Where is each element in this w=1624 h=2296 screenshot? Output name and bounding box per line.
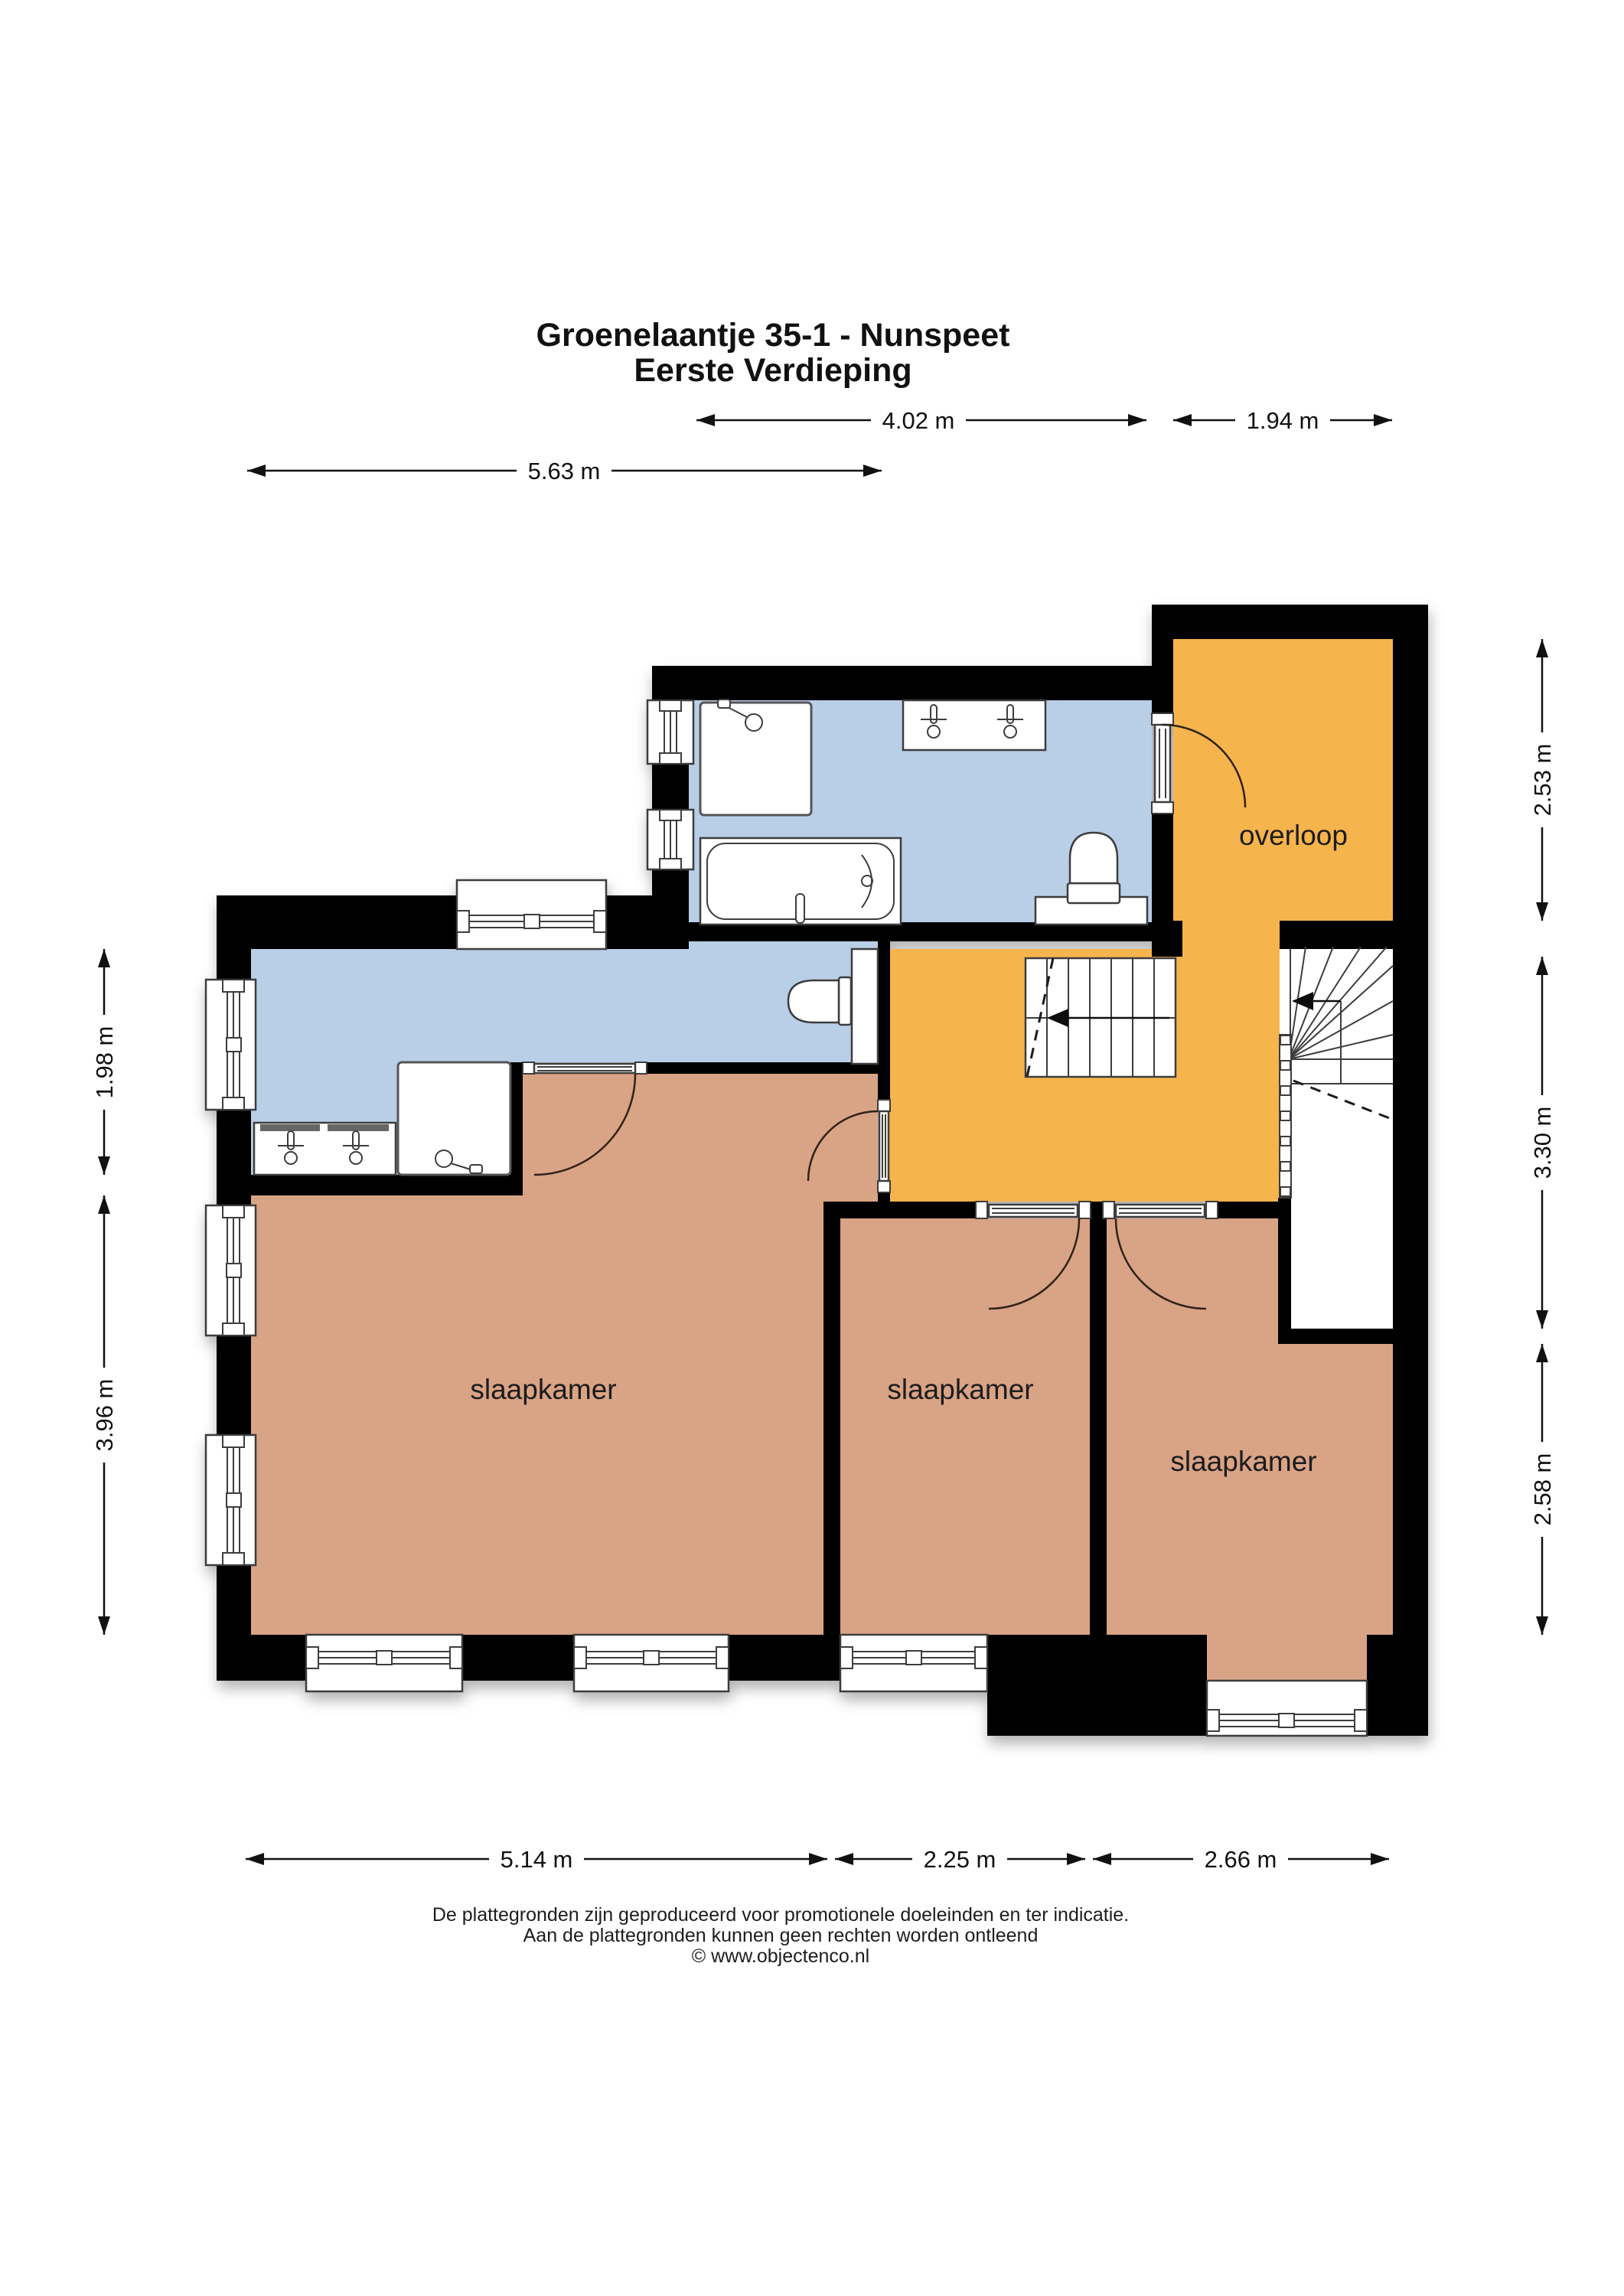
room-label-slaapkamer-middle: slaapkamer [887,1374,1033,1405]
window-left-3 [206,1435,256,1565]
door-leaf [879,1111,889,1181]
arrowhead-down-icon [98,1616,110,1635]
dimension-right-258: 2.58 m [1528,1344,1556,1635]
window-left-2 [206,1205,256,1336]
window-jamb [975,1647,987,1668]
arrowhead-up-icon [1536,1344,1548,1362]
door-leaf [989,1205,1078,1217]
window-post [377,1651,392,1665]
room-label-slaapkamer-left: slaapkamer [470,1374,616,1405]
stairs-icon-hal [1026,958,1176,1077]
floor-plan: overloop slaapkamer slaapkamer slaapkame… [206,605,1428,1736]
bathtub-tap [796,894,804,923]
window-jamb [660,859,681,869]
door-jamb [878,1100,890,1111]
arrowhead-left-icon [835,1853,853,1865]
window-jamb [450,1647,462,1668]
arrowhead-left-icon [1093,1853,1111,1865]
door-jamb [1152,802,1173,814]
dimension-top-194: 1.94 m [1173,406,1392,434]
shower-icon [700,700,811,815]
vanity-icon-bathroom [903,700,1045,750]
room-label-slaapkamer-right: slaapkamer [1170,1446,1316,1477]
shower-valve [718,700,730,708]
window-jamb [840,1647,853,1668]
shower-valve [470,1165,482,1173]
dimension-bottom-225: 2.25 m [835,1845,1085,1873]
vanity-counter [903,700,1045,750]
footer-line3: © www.objectenco.nl [692,1945,869,1967]
page-title-line2: Eerste Verdieping [634,352,911,389]
dimension-left-396: 3.96 m [90,1195,118,1635]
dimension-label: 4.02 m [882,407,955,434]
door-jamb [1079,1202,1091,1218]
window-hallway-north [457,880,606,949]
dimension-top-402: 4.02 m [696,406,1146,434]
toilet-tank [839,977,851,1025]
window-post [227,1038,241,1052]
arrowhead-left-icon [696,414,715,426]
room-label-overloop: overloop [1239,820,1348,851]
dimension-label: 5.14 m [501,1846,573,1873]
dimension-label: 2.66 m [1205,1846,1277,1873]
window-post [227,1493,241,1507]
dimension-label: 3.30 m [1529,1107,1556,1179]
floor-plan-page: Groenelaantje 35-1 - Nunspeet Eerste Ver… [0,0,1624,2296]
dimension-right-330: 3.30 m [1528,957,1556,1329]
arrowhead-down-icon [98,1156,110,1175]
balustrade-post [1280,1035,1290,1045]
window-jamb [223,1205,244,1218]
balustrade-post [1280,1137,1290,1146]
door-leaf [1116,1205,1205,1217]
dimension-top-563: 5.63 m [247,457,882,484]
arrowhead-down-icon [1536,1310,1548,1329]
window-jamb [223,1435,244,1447]
door-leaf [534,1064,635,1073]
toilet-bowl [788,980,839,1022]
floor-plan-canvas: Groenelaantje 35-1 - Nunspeet Eerste Ver… [0,0,1624,2296]
shower-icon-hallway [398,1062,510,1175]
bathtub-icon [700,838,901,925]
window-bottom-2 [574,1635,729,1691]
door-jamb [1103,1202,1114,1218]
arrowhead-up-icon [1536,639,1548,657]
window-jamb [660,810,681,820]
balustrade-post [1280,1187,1290,1196]
shower-tray [398,1062,510,1175]
toilet-platform [852,949,878,1064]
window-post [906,1651,921,1665]
window-post [644,1651,659,1665]
window-jamb [223,1323,244,1336]
arrowhead-right-icon [809,1853,827,1865]
vanity-icon-hallway [254,1123,396,1175]
arrowhead-right-icon [1374,414,1392,426]
door-jamb [1152,713,1173,725]
window-bottom-1 [306,1635,462,1691]
footer-line1: De plattegronden zijn geproduceerd voor … [432,1904,1129,1926]
dimension-label: 1.94 m [1247,407,1319,434]
window-jamb [223,980,244,992]
window-jamb [660,700,681,711]
window-extension [1207,1681,1367,1736]
window-post [524,915,540,928]
arrowhead-up-icon [98,949,110,967]
arrowhead-down-icon [1536,902,1548,921]
arrowhead-up-icon [98,1195,110,1214]
arrowhead-left-icon [246,1853,264,1865]
door-jamb [523,1062,534,1074]
arrowhead-left-icon [1173,414,1192,426]
balustrade-post [1280,1086,1290,1095]
window-jamb [660,753,681,764]
window-post [227,1264,241,1277]
dimension-bottom-514: 5.14 m [246,1845,827,1873]
window-jamb [574,1647,586,1668]
window-jamb [1207,1710,1219,1731]
door-jamb [878,1181,890,1192]
window-bathroom-2 [647,810,693,869]
window-bottom-3 [840,1635,987,1691]
dimension-label: 2.25 m [924,1846,996,1873]
page-title-line1: Groenelaantje 35-1 - Nunspeet [536,317,1010,354]
door-jamb [1206,1202,1218,1218]
window-jamb [594,911,606,932]
balustrade-post [1280,1061,1290,1070]
toilet-bowl [1070,833,1117,883]
window-jamb [1355,1710,1367,1731]
window-jamb [223,1553,244,1565]
arrowhead-down-icon [1536,1616,1548,1635]
door-jamb [635,1062,647,1074]
dimension-label: 5.63 m [528,458,601,484]
window-jamb [223,1097,244,1110]
arrowhead-right-icon [863,465,882,477]
door-leaf [1155,725,1170,802]
dimension-label: 3.96 m [91,1379,118,1452]
footer-line2: Aan de plattegronden kunnen geen rechten… [523,1925,1039,1946]
arrowhead-up-icon [1536,957,1548,975]
dimension-label: 2.53 m [1529,744,1556,817]
arrowhead-left-icon [247,465,266,477]
room-slaapkamer-middle-floor [840,1218,1090,1635]
toilet-tank [1068,883,1120,903]
dimension-left-198: 1.98 m [90,949,118,1175]
vanity-sink-strip [328,1124,389,1131]
window-bathroom-1 [647,700,693,764]
arrowhead-right-icon [1067,1853,1085,1865]
vanity-sink-strip [260,1124,320,1131]
arrowhead-right-icon [1128,414,1146,426]
balustrade-post [1280,1162,1290,1171]
arrowhead-right-icon [1371,1853,1389,1865]
window-jamb [716,1647,729,1668]
balustrade-post [1280,1111,1290,1120]
shower-tray [700,703,811,815]
dimension-label: 1.98 m [91,1026,118,1099]
dimension-right-253: 2.53 m [1528,639,1556,921]
window-jamb [306,1647,318,1668]
window-left-1 [206,980,256,1110]
dimension-bottom-266: 2.66 m [1093,1845,1389,1873]
door-jamb [976,1202,987,1218]
dimension-label: 2.58 m [1529,1453,1556,1526]
window-jamb [457,911,469,932]
window-post [1279,1714,1294,1727]
